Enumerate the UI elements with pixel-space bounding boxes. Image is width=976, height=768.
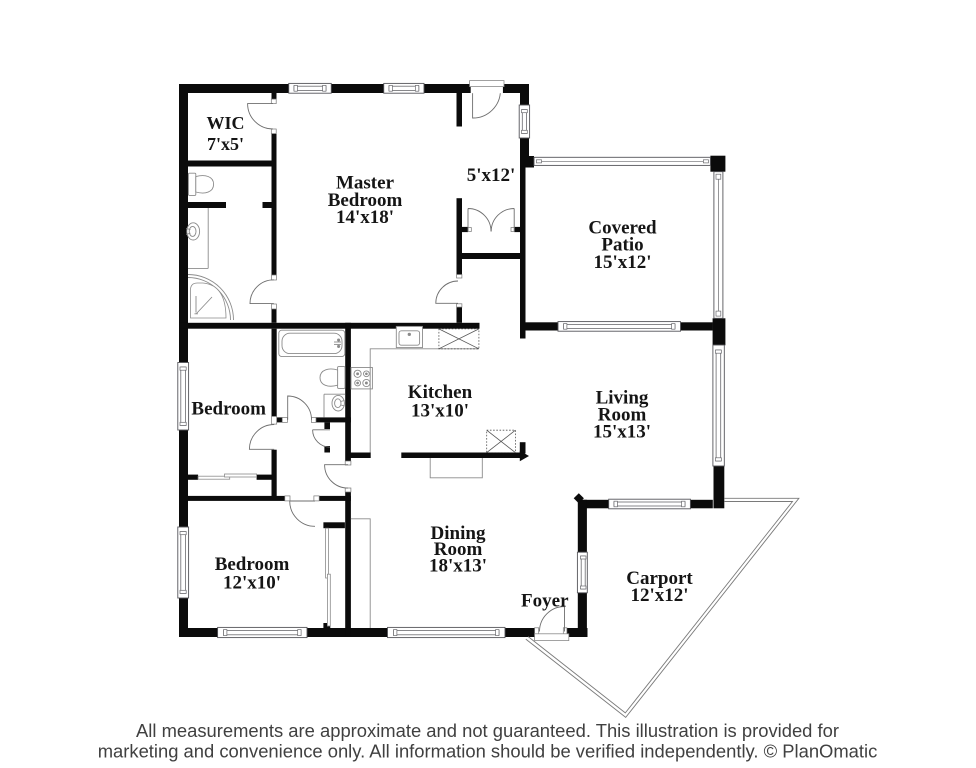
svg-text:All measurements are approxima: All measurements are approximate and not… bbox=[136, 720, 839, 741]
svg-text:5'x12': 5'x12' bbox=[467, 165, 516, 186]
svg-text:12'x10': 12'x10' bbox=[223, 572, 281, 593]
svg-text:7'x5': 7'x5' bbox=[207, 134, 244, 154]
svg-text:14'x18': 14'x18' bbox=[336, 207, 394, 228]
svg-text:12'x12': 12'x12' bbox=[630, 585, 688, 606]
svg-text:15'x12': 15'x12' bbox=[593, 252, 651, 273]
svg-text:15'x13': 15'x13' bbox=[593, 422, 651, 443]
svg-text:13'x10': 13'x10' bbox=[411, 400, 469, 421]
svg-text:Bedroom: Bedroom bbox=[191, 399, 266, 420]
svg-text:WIC: WIC bbox=[206, 113, 244, 133]
svg-text:Foyer: Foyer bbox=[521, 591, 569, 612]
svg-text:18'x13': 18'x13' bbox=[429, 555, 487, 576]
svg-text:marketing and convenience only: marketing and convenience only. All info… bbox=[98, 740, 878, 761]
